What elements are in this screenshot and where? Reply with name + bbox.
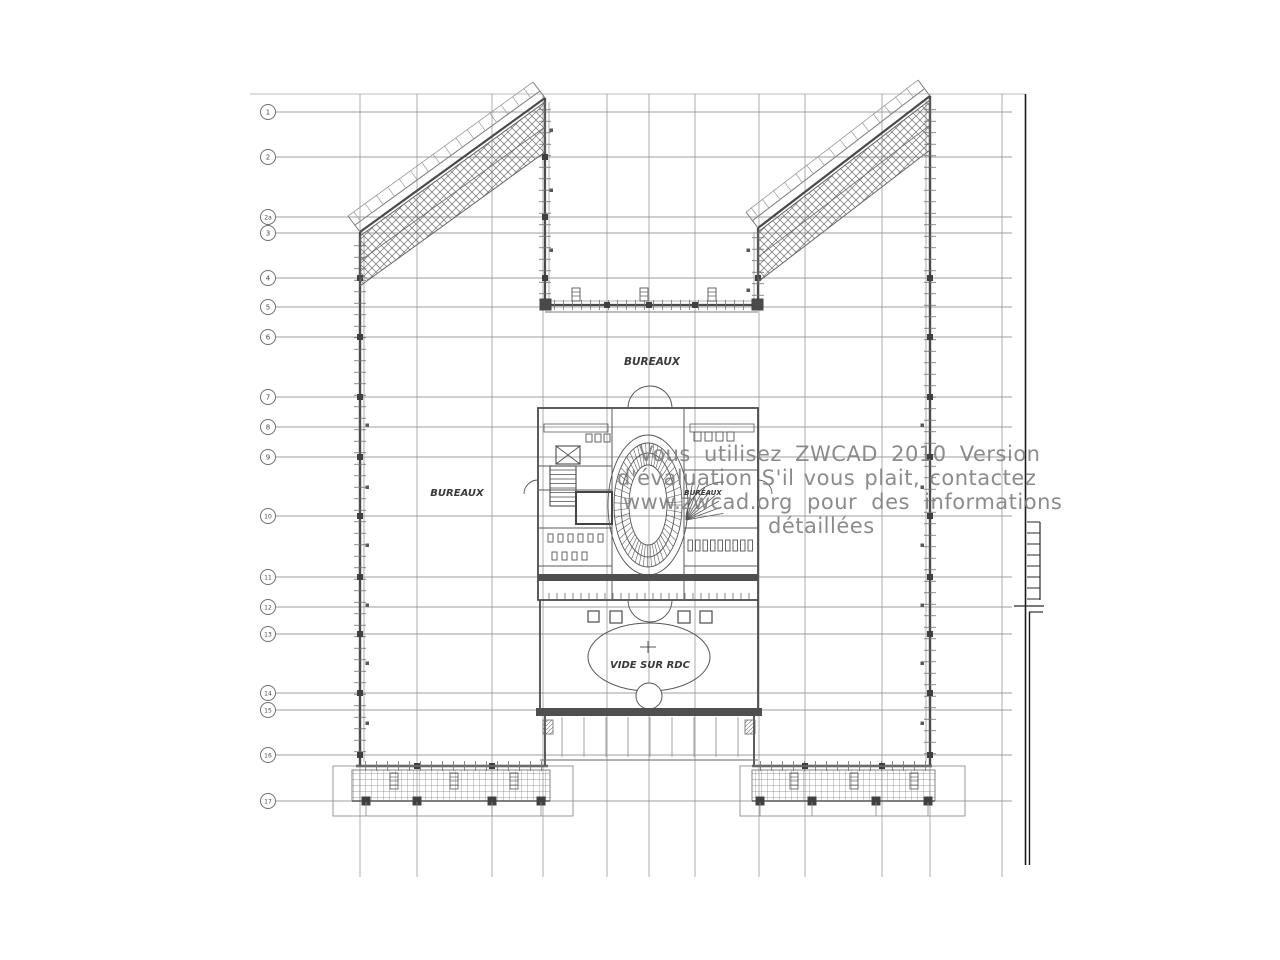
svg-text:3: 3 xyxy=(266,230,270,238)
grid-axis-bubble: 14 xyxy=(261,686,276,701)
grid-axis-bubble: 1 xyxy=(261,105,276,120)
svg-text:10: 10 xyxy=(264,514,272,521)
label-bureaux-left: BUREAUX xyxy=(430,488,485,499)
grid-axis-bubble: 13 xyxy=(261,627,276,642)
label-vide-sur-rdc: VIDE SUR RDC xyxy=(610,660,691,671)
watermark-line-2: d'évaluation S'il vous plait, contactez xyxy=(617,466,1036,490)
watermark-line-1: Vous utilisez ZWCAD 2010 Version xyxy=(639,442,1040,466)
svg-text:9: 9 xyxy=(266,454,270,462)
svg-text:8: 8 xyxy=(266,424,270,432)
grid-axis-bubble: 9 xyxy=(261,450,276,465)
grid-axis-bubble: 2 xyxy=(261,150,276,165)
grid-axis-bubble: 3 xyxy=(261,226,276,241)
grid-axis-bubble: 17 xyxy=(261,794,276,809)
grid-axis-bubble: 6 xyxy=(261,330,276,345)
watermark-line-3: www.zwcad.org pour des informations xyxy=(623,490,1062,514)
svg-text:6: 6 xyxy=(266,334,271,342)
svg-text:7: 7 xyxy=(266,394,270,402)
grid-axis-bubble: 12 xyxy=(261,600,276,615)
svg-text:5: 5 xyxy=(266,304,270,312)
roof-hatch-bands xyxy=(360,100,930,286)
svg-text:15: 15 xyxy=(264,708,272,715)
svg-text:14: 14 xyxy=(264,691,272,698)
svg-text:1: 1 xyxy=(266,109,270,117)
svg-text:2a: 2a xyxy=(264,215,272,222)
grid-axis-bubble: 8 xyxy=(261,420,276,435)
grid-axis-bubble: 4 xyxy=(261,271,276,286)
grid-axis-bubble: 15 xyxy=(261,703,276,718)
svg-text:11: 11 xyxy=(264,575,272,582)
grid-axis-bubble: 16 xyxy=(261,748,276,763)
svg-text:16: 16 xyxy=(264,753,272,760)
grid-axis-bubble: 11 xyxy=(261,570,276,585)
label-bureaux-top: BUREAUX xyxy=(624,356,681,368)
grid-axis-bubble: 2a xyxy=(261,210,276,225)
grid-axis-bubble: 5 xyxy=(261,300,276,315)
cad-viewport: 122a34567891011121314151617 BUREAUX BURE… xyxy=(0,0,1280,960)
grid-axis-bubble: 7 xyxy=(261,390,276,405)
watermark-line-4: détaillées xyxy=(768,514,875,538)
svg-text:13: 13 xyxy=(264,632,272,639)
svg-text:4: 4 xyxy=(266,275,271,283)
grid-axis-bubble: 10 xyxy=(261,509,276,524)
svg-text:17: 17 xyxy=(264,799,272,806)
svg-text:12: 12 xyxy=(264,605,272,612)
svg-text:2: 2 xyxy=(266,154,270,162)
grid-axis-bubbles: 122a34567891011121314151617 xyxy=(261,105,276,809)
